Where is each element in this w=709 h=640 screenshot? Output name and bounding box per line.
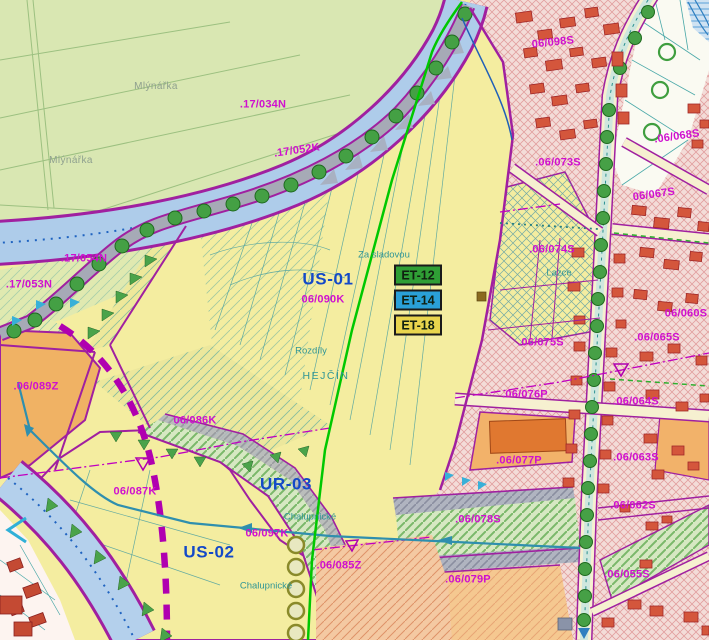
map-art <box>0 0 709 640</box>
gray-building <box>558 618 572 630</box>
zone-06-085Z <box>316 535 452 640</box>
zoning-map-canvas[interactable]: MlýnářkaMlýnářka.17/034N.17/052K.17/054N… <box>0 0 709 640</box>
substation-building <box>477 292 486 301</box>
